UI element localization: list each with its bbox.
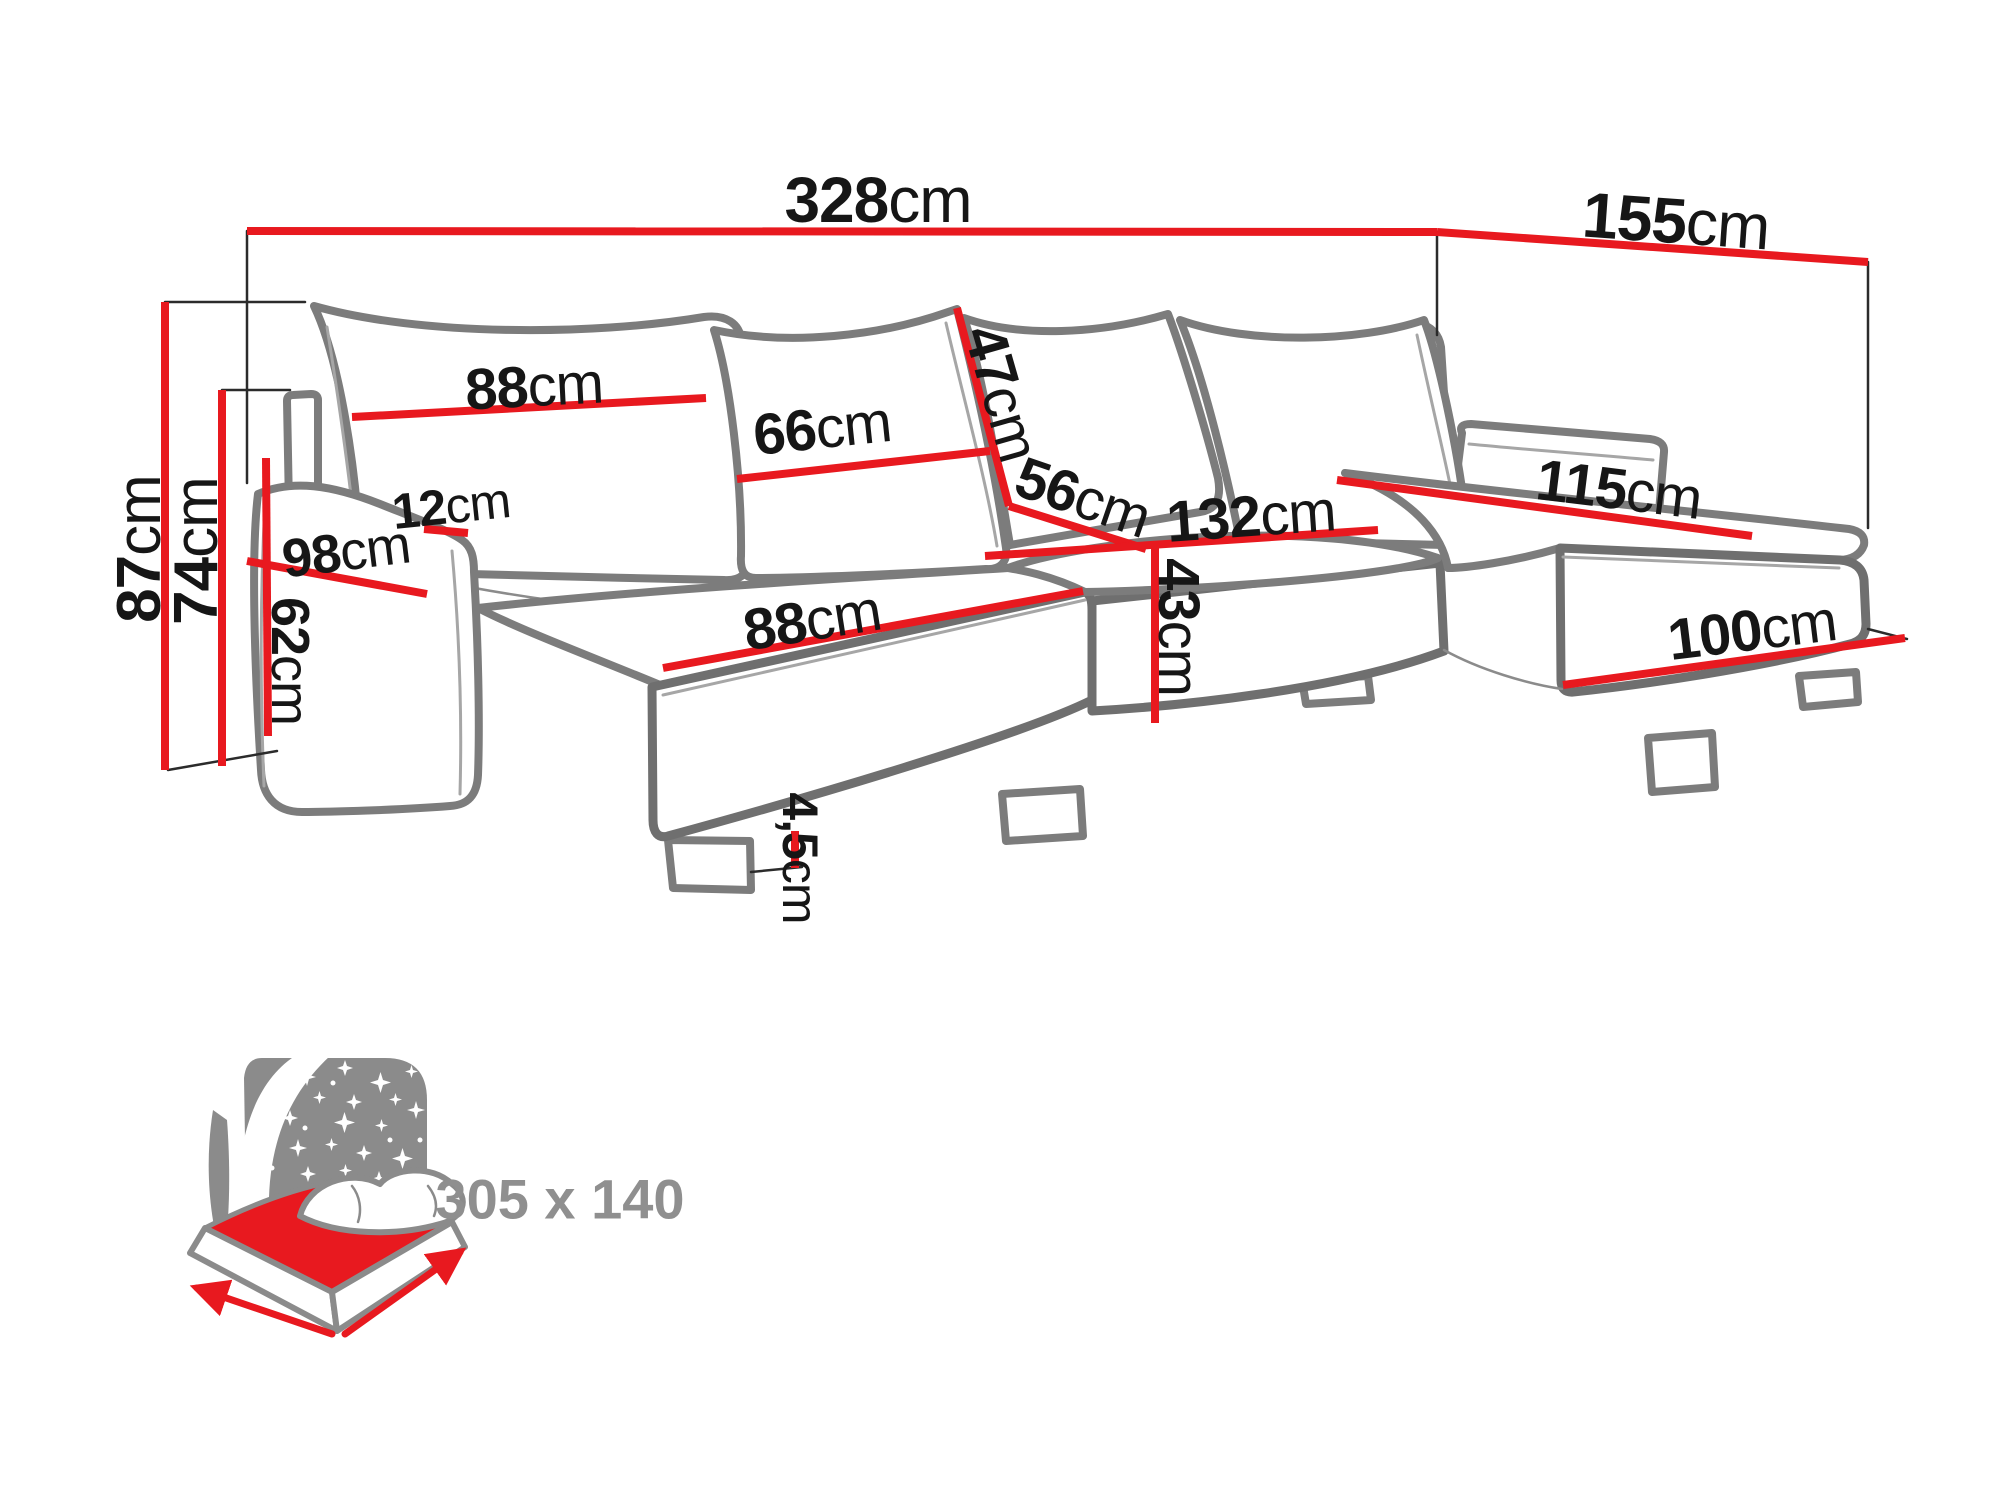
dim-label-arm-height: 62cm [260,597,320,725]
right-chaise-foot-right [1799,672,1858,707]
dim-label-mid-seat: 132cm [1164,478,1337,555]
sleeping-size-label: 305 x 140 [435,1168,684,1231]
left-chaise-foot-front [668,840,751,890]
dim-label-left-pillow: 88cm [463,350,604,422]
dim-label-right-depth: 155cm [1580,179,1772,264]
diagram-canvas: 328cm 155cm 87cm 74cm 88cm 66cm 47cm 56c… [0,0,2000,1500]
sleeping-function-icon [190,1054,465,1334]
right-chaise-foot-front [1648,733,1715,792]
dim-label-seat-height: 43cm [1147,558,1212,696]
dim-label-total-width: 328cm [784,164,971,236]
left-chaise-foot-right [1002,789,1083,841]
right-chaise-bottom-join [1444,650,1562,689]
page: { "title": "Corner sofa dimensions diagr… [0,0,2000,1500]
dim-label-backrest-height: 74cm [162,477,231,625]
dim-label-foot-height: 4,5cm [772,792,828,923]
